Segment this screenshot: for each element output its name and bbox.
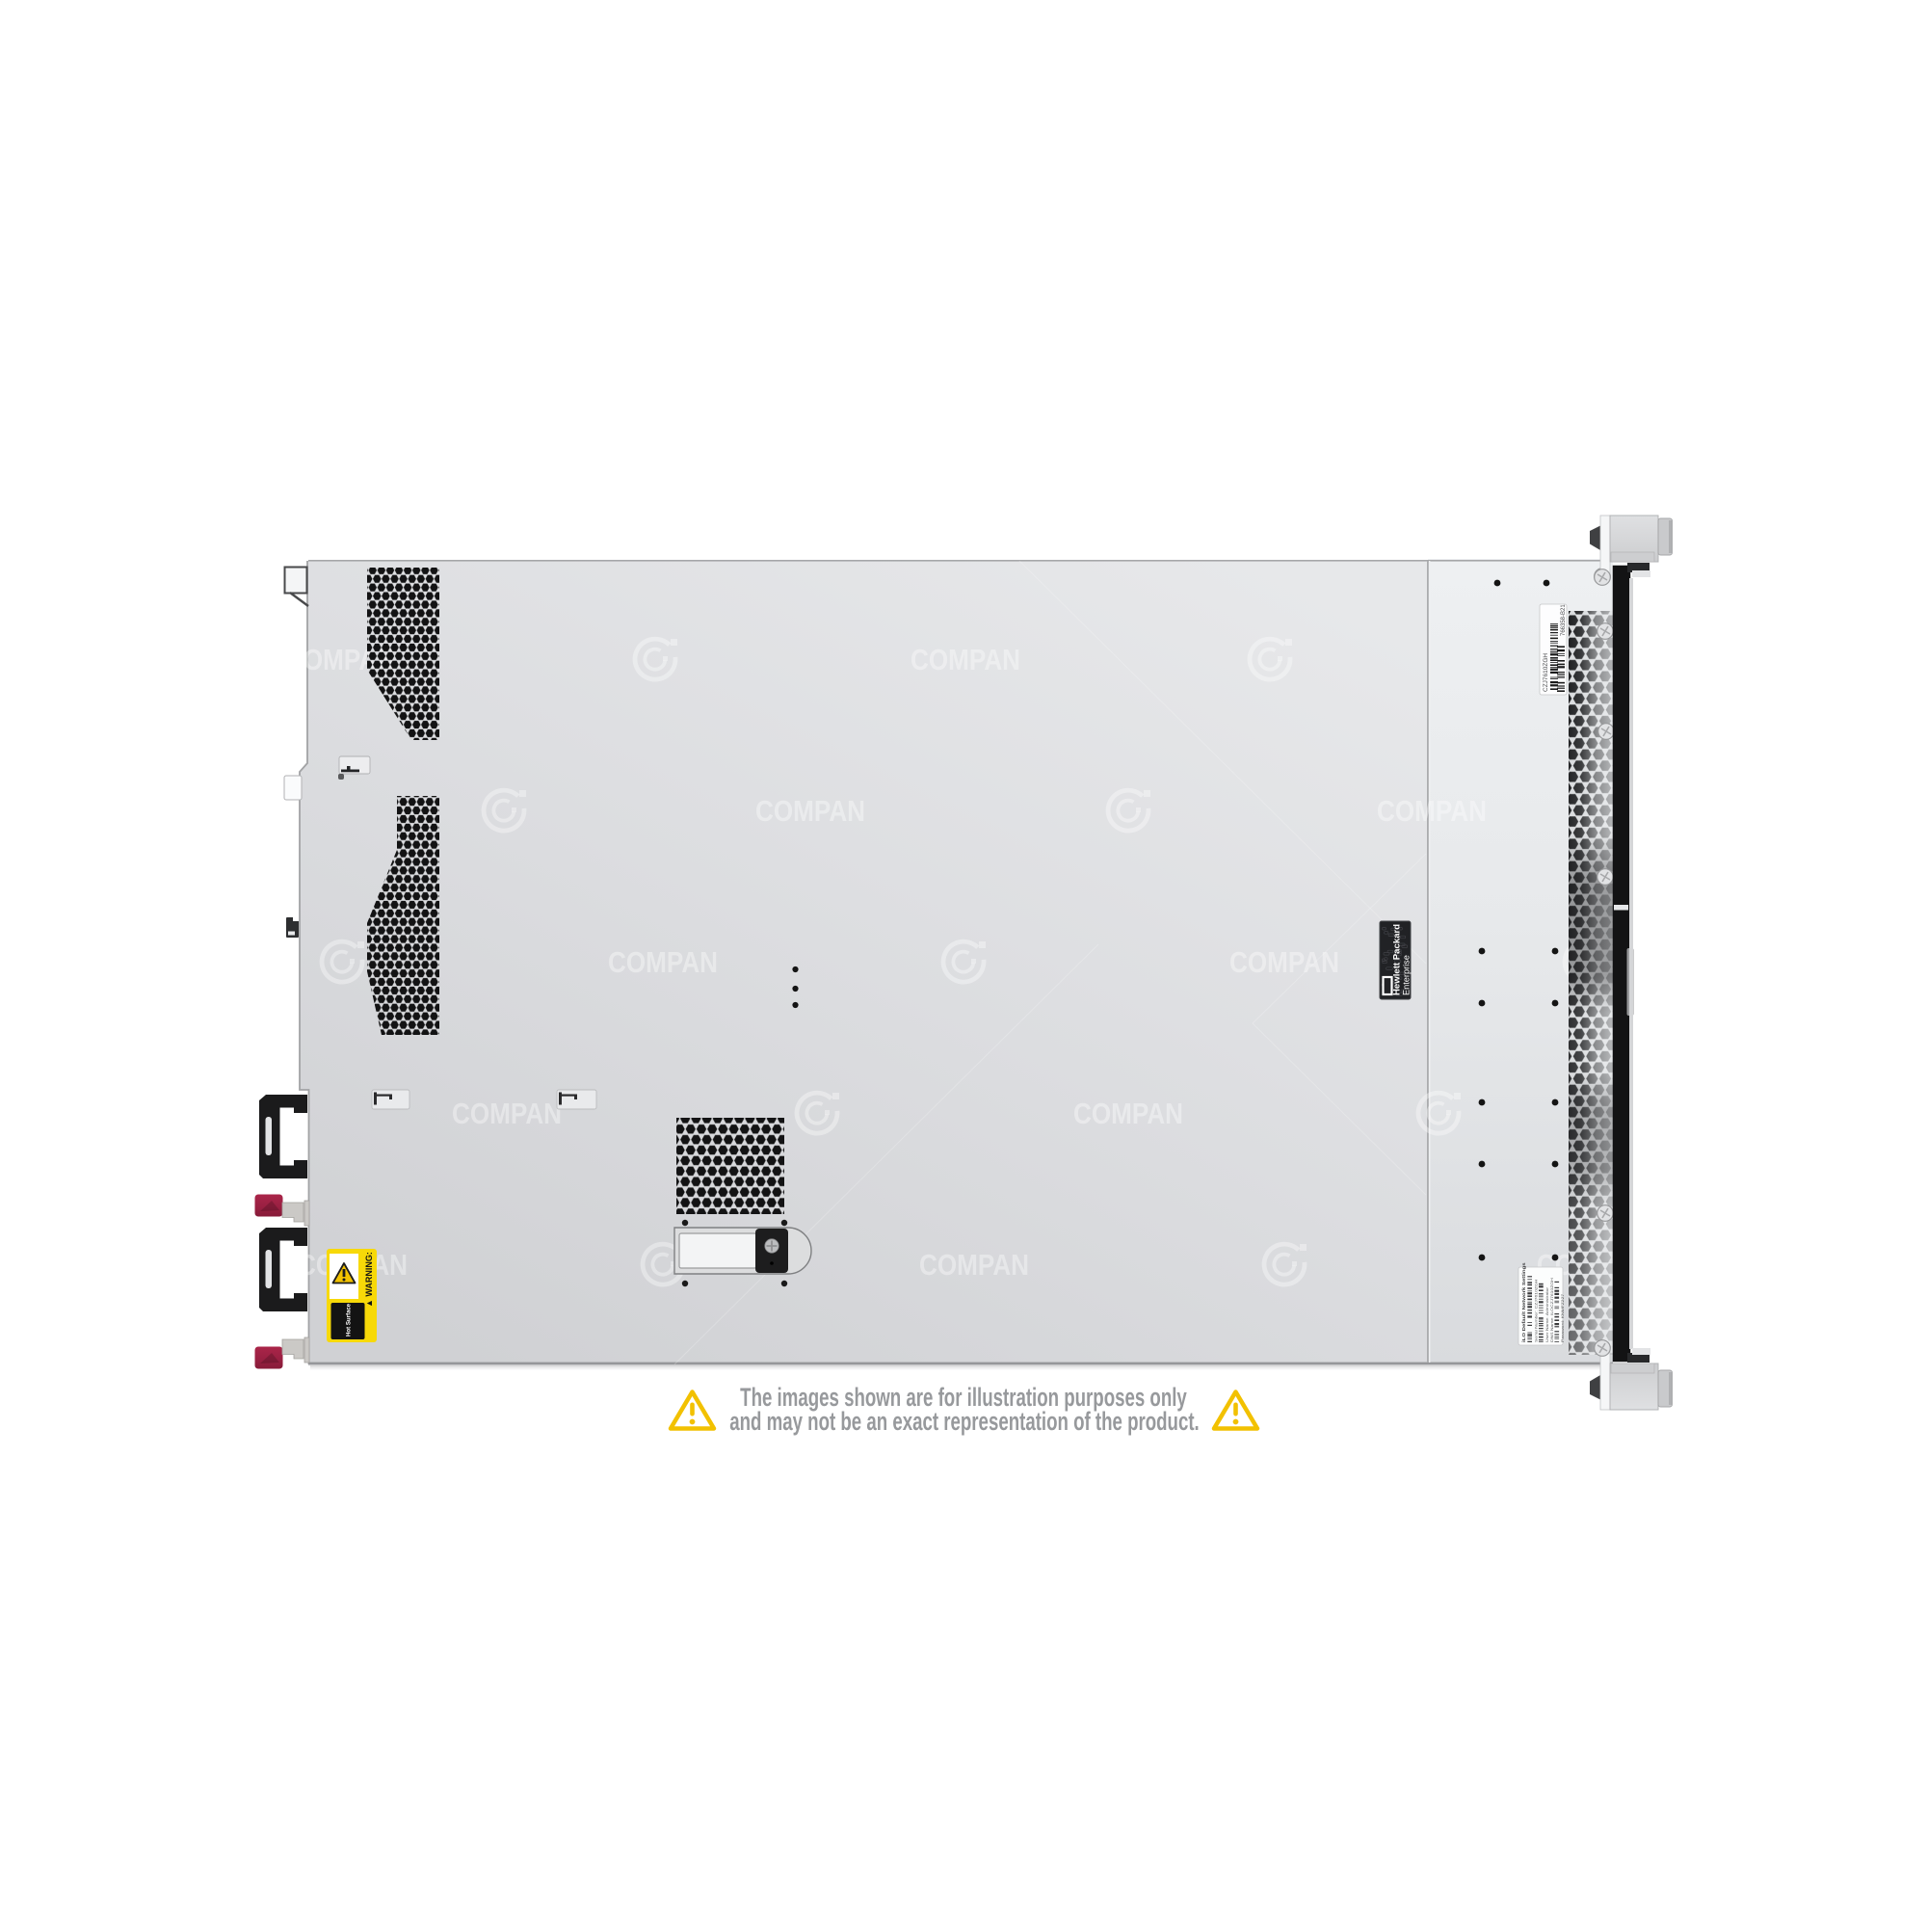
svg-text:COMPAN: COMPAN	[452, 1098, 562, 1130]
svg-text:COMPAN: COMPAN	[911, 644, 1020, 676]
svg-text:Enterprise: Enterprise	[1402, 955, 1412, 995]
svg-text:DNS Name: ILOCZJ7610ZGH: DNS Name: ILOCZJ7610ZGH	[1549, 1278, 1553, 1342]
svg-text:COMPAN: COMPAN	[1377, 795, 1487, 828]
svg-text:COMPAN: COMPAN	[919, 1249, 1029, 1282]
svg-text:iLO Default Network Settings: iLO Default Network Settings	[1522, 1262, 1527, 1342]
svg-text:▲ WARNING:: ▲ WARNING:	[364, 1252, 374, 1308]
svg-text:CZJ7610ZGH: CZJ7610ZGH	[1543, 653, 1549, 692]
svg-text:COMPAN: COMPAN	[1229, 946, 1339, 979]
svg-text:766358-B21: 766358-B21	[1561, 604, 1567, 636]
svg-text:COMPAN: COMPAN	[608, 946, 718, 979]
svg-text:and may not be an exact repres: and may not be an exact representation o…	[729, 1407, 1199, 1436]
svg-text:Hot Surface: Hot Surface	[346, 1303, 353, 1337]
svg-text:User Name: Administrator: User Name: Administrator	[1545, 1286, 1549, 1342]
svg-text:Serial Number: CZJ7610ZGH: Serial Number: CZJ7610ZGH	[1534, 1280, 1538, 1342]
svg-text:COMPAN: COMPAN	[755, 795, 865, 828]
svg-text:COMPAN: COMPAN	[1073, 1098, 1183, 1130]
svg-text:Password: KNMFZ227: Password: KNMFZ227	[1560, 1293, 1564, 1342]
